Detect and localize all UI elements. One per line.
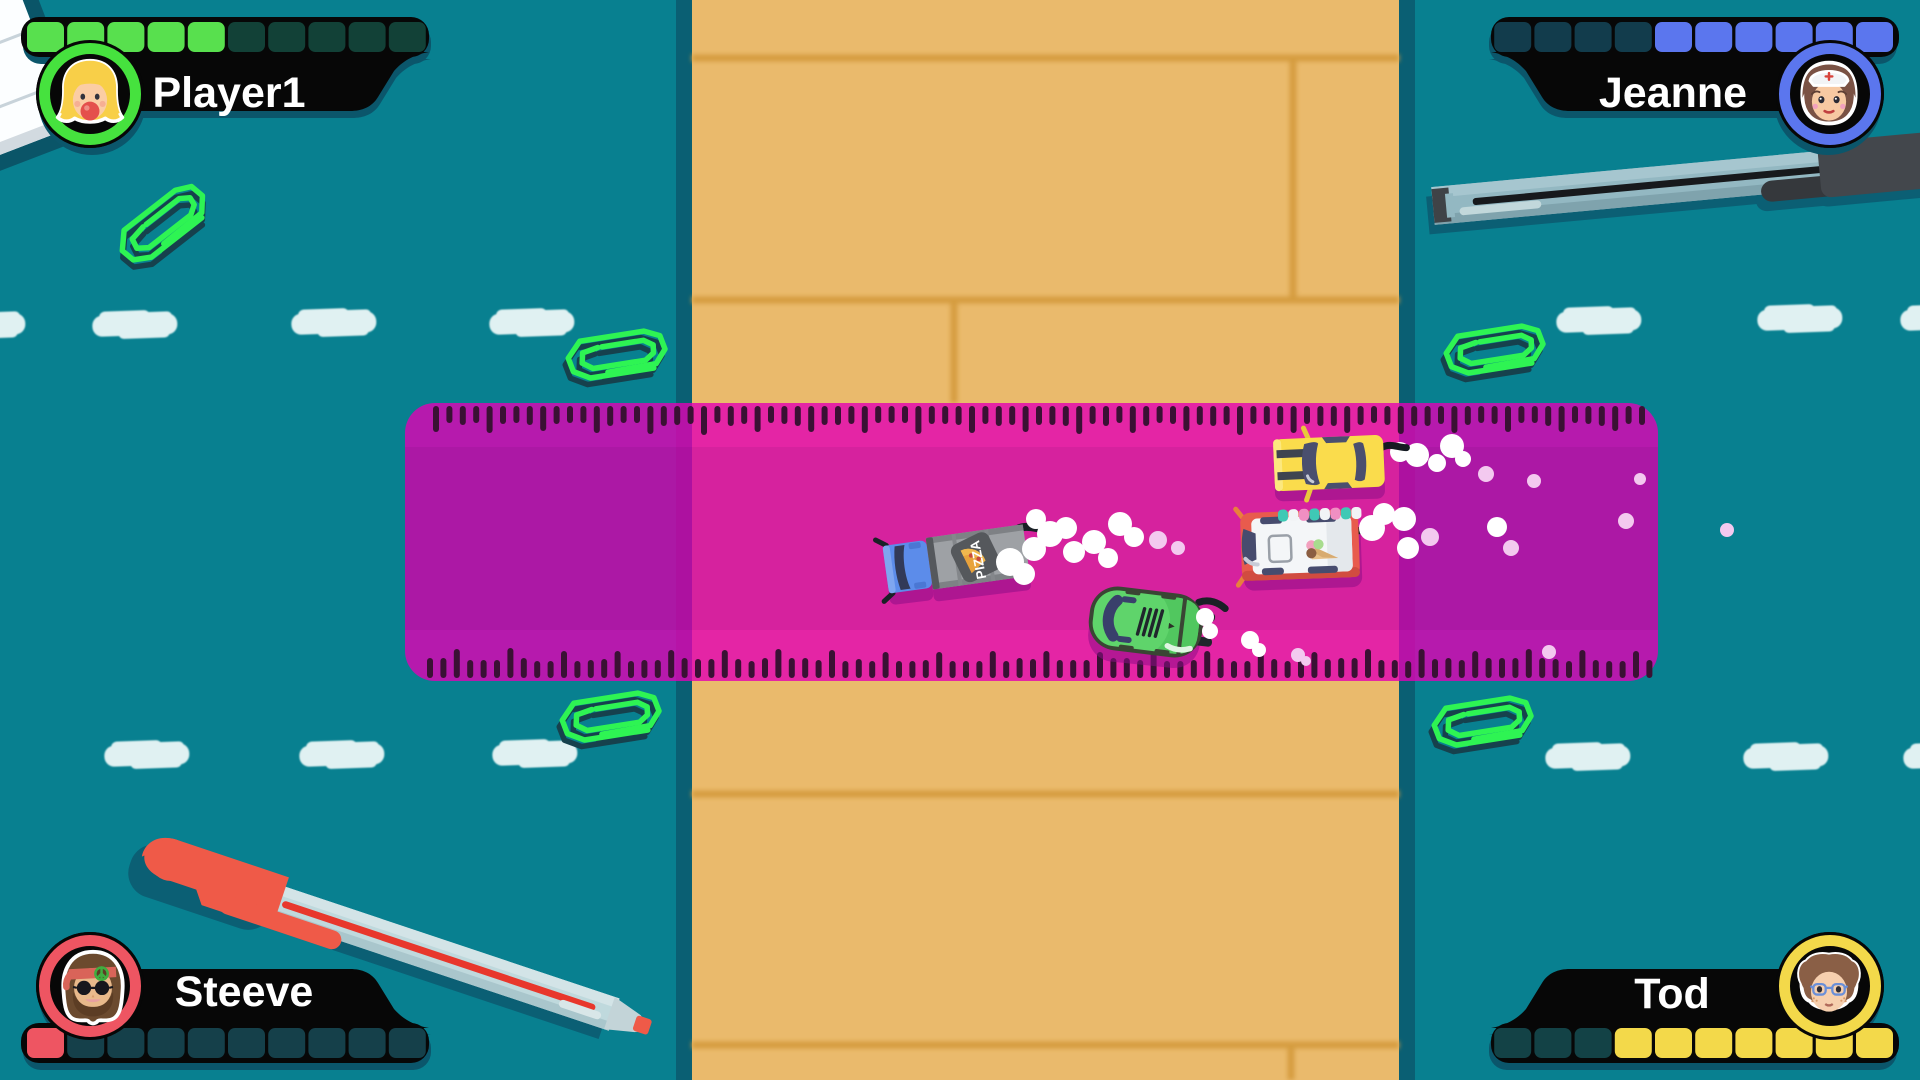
svg-text:Tod: Tod [1634, 970, 1710, 1018]
svg-text:Steeve: Steeve [175, 968, 314, 1016]
svg-text:Jeanne: Jeanne [1599, 69, 1747, 117]
svg-text:Player1: Player1 [152, 69, 305, 117]
